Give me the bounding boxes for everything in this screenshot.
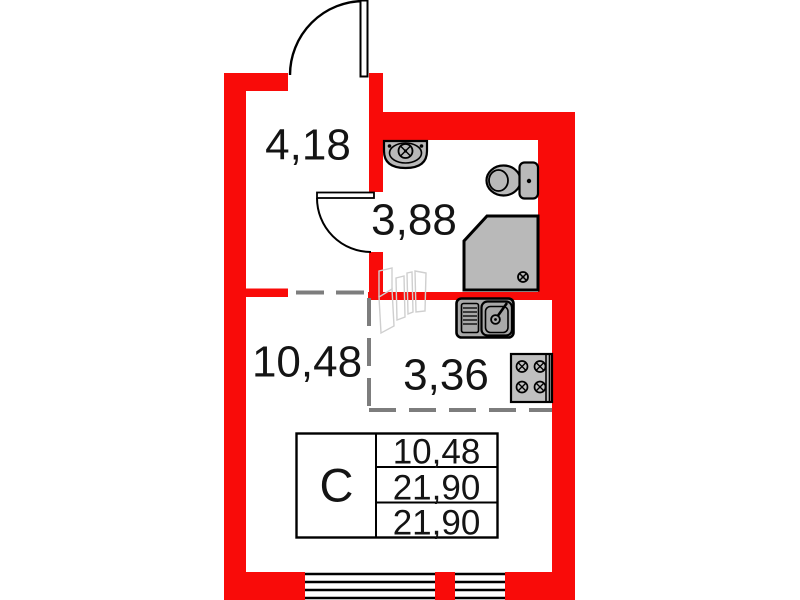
bathroom-sink-icon <box>384 141 427 168</box>
window-hatch-left <box>305 574 435 598</box>
bathroom-door-arc <box>317 198 371 252</box>
stove-burner <box>535 361 546 372</box>
wall-bottom-pier <box>435 572 455 600</box>
wall-bottom-left <box>224 572 305 600</box>
toilet-bowl <box>487 166 521 196</box>
entrance-door-leaf <box>361 1 368 77</box>
apartment-type-label: С <box>320 459 354 512</box>
bathroom-area-label: 3,88 <box>371 196 457 245</box>
toilet-icon <box>487 163 539 199</box>
table-row-value-1: 10,48 <box>393 433 481 472</box>
entrance-door <box>290 1 368 77</box>
wall-right-lower <box>552 300 575 600</box>
info-table: С 10,48 21,90 21,90 <box>297 433 498 543</box>
stove-burner <box>517 382 528 393</box>
hallway-area-label: 4,18 <box>265 121 351 170</box>
table-row-value-3: 21,90 <box>393 504 481 543</box>
kitchen-sink-icon <box>457 299 514 338</box>
wall-bottom-right <box>505 572 575 600</box>
shower-tray-icon <box>464 216 538 290</box>
wall-hall-top <box>224 73 288 91</box>
table-row-value-2: 21,90 <box>393 469 481 508</box>
window-hatch-right <box>455 574 505 598</box>
living-room-area-label: 10,48 <box>252 338 362 387</box>
stove-burner <box>535 382 546 393</box>
entrance-door-arc <box>290 1 364 75</box>
wall-left <box>224 73 246 600</box>
ghost-sketch <box>379 268 426 333</box>
wall-hall-living-stub <box>246 289 288 298</box>
kitchen-area-label: 3,36 <box>403 351 489 400</box>
bathroom-door <box>317 193 374 253</box>
stove-burner <box>517 361 528 372</box>
floor-plan-drawing: 4,18 3,88 10,48 3,36 С 10,48 21,90 21,90 <box>0 0 800 600</box>
floor-plan-page: 4,18 3,88 10,48 3,36 С 10,48 21,90 21,90 <box>0 0 800 600</box>
stove-icon <box>511 354 552 402</box>
wall-right-upper <box>538 112 575 300</box>
bathroom-door-leaf <box>317 193 374 199</box>
